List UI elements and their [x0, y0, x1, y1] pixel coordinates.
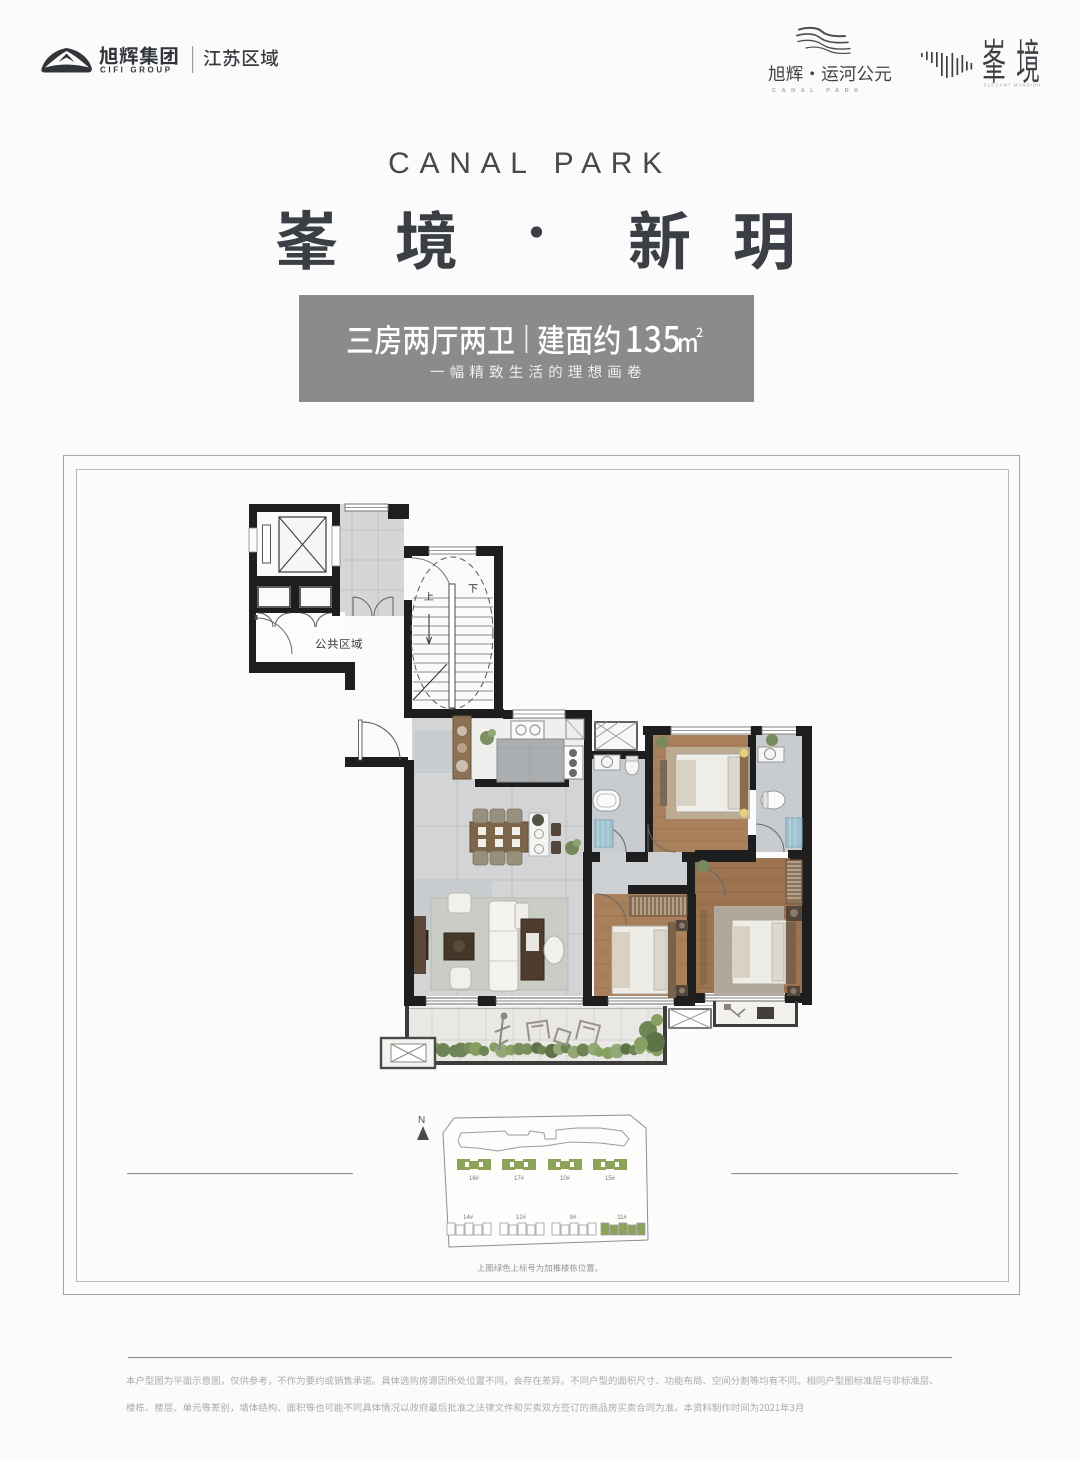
- svg-text:CIFI GROUP: CIFI GROUP: [100, 66, 173, 75]
- svg-text:ELEGANT MANSION: ELEGANT MANSION: [984, 83, 1041, 88]
- svg-text:17#: 17#: [514, 1176, 525, 1182]
- svg-text:11#: 11#: [617, 1215, 627, 1221]
- svg-text:CANAL PARK: CANAL PARK: [772, 88, 864, 94]
- svg-text:14#: 14#: [463, 1215, 474, 1221]
- svg-text:15#: 15#: [605, 1176, 616, 1182]
- svg-text:10#: 10#: [560, 1176, 571, 1182]
- svg-text:CANAL PARK: CANAL PARK: [388, 147, 672, 180]
- svg-text:12#: 12#: [516, 1215, 527, 1221]
- svg-text:16#: 16#: [469, 1176, 480, 1182]
- svg-text:9#: 9#: [570, 1215, 577, 1221]
- svg-text:N: N: [418, 1115, 425, 1126]
